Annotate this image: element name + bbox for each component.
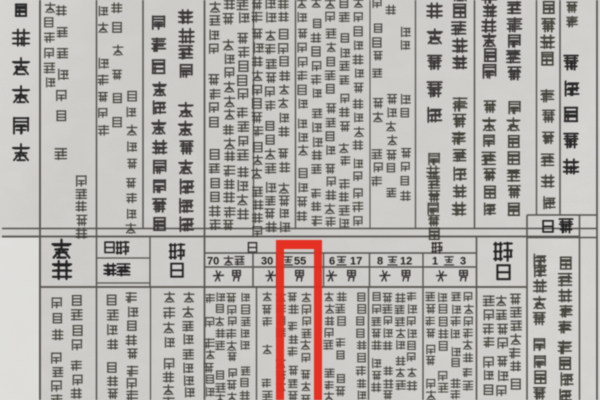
svg-text:55: 55 [294, 256, 306, 268]
svg-text:1: 1 [432, 256, 438, 268]
svg-text:12: 12 [400, 256, 412, 268]
svg-text:17: 17 [350, 256, 362, 268]
svg-text:8: 8 [377, 256, 383, 268]
svg-text:6: 6 [329, 256, 335, 268]
svg-text:3: 3 [460, 256, 466, 268]
svg-text:70: 70 [207, 256, 219, 268]
svg-text:30: 30 [261, 256, 273, 268]
